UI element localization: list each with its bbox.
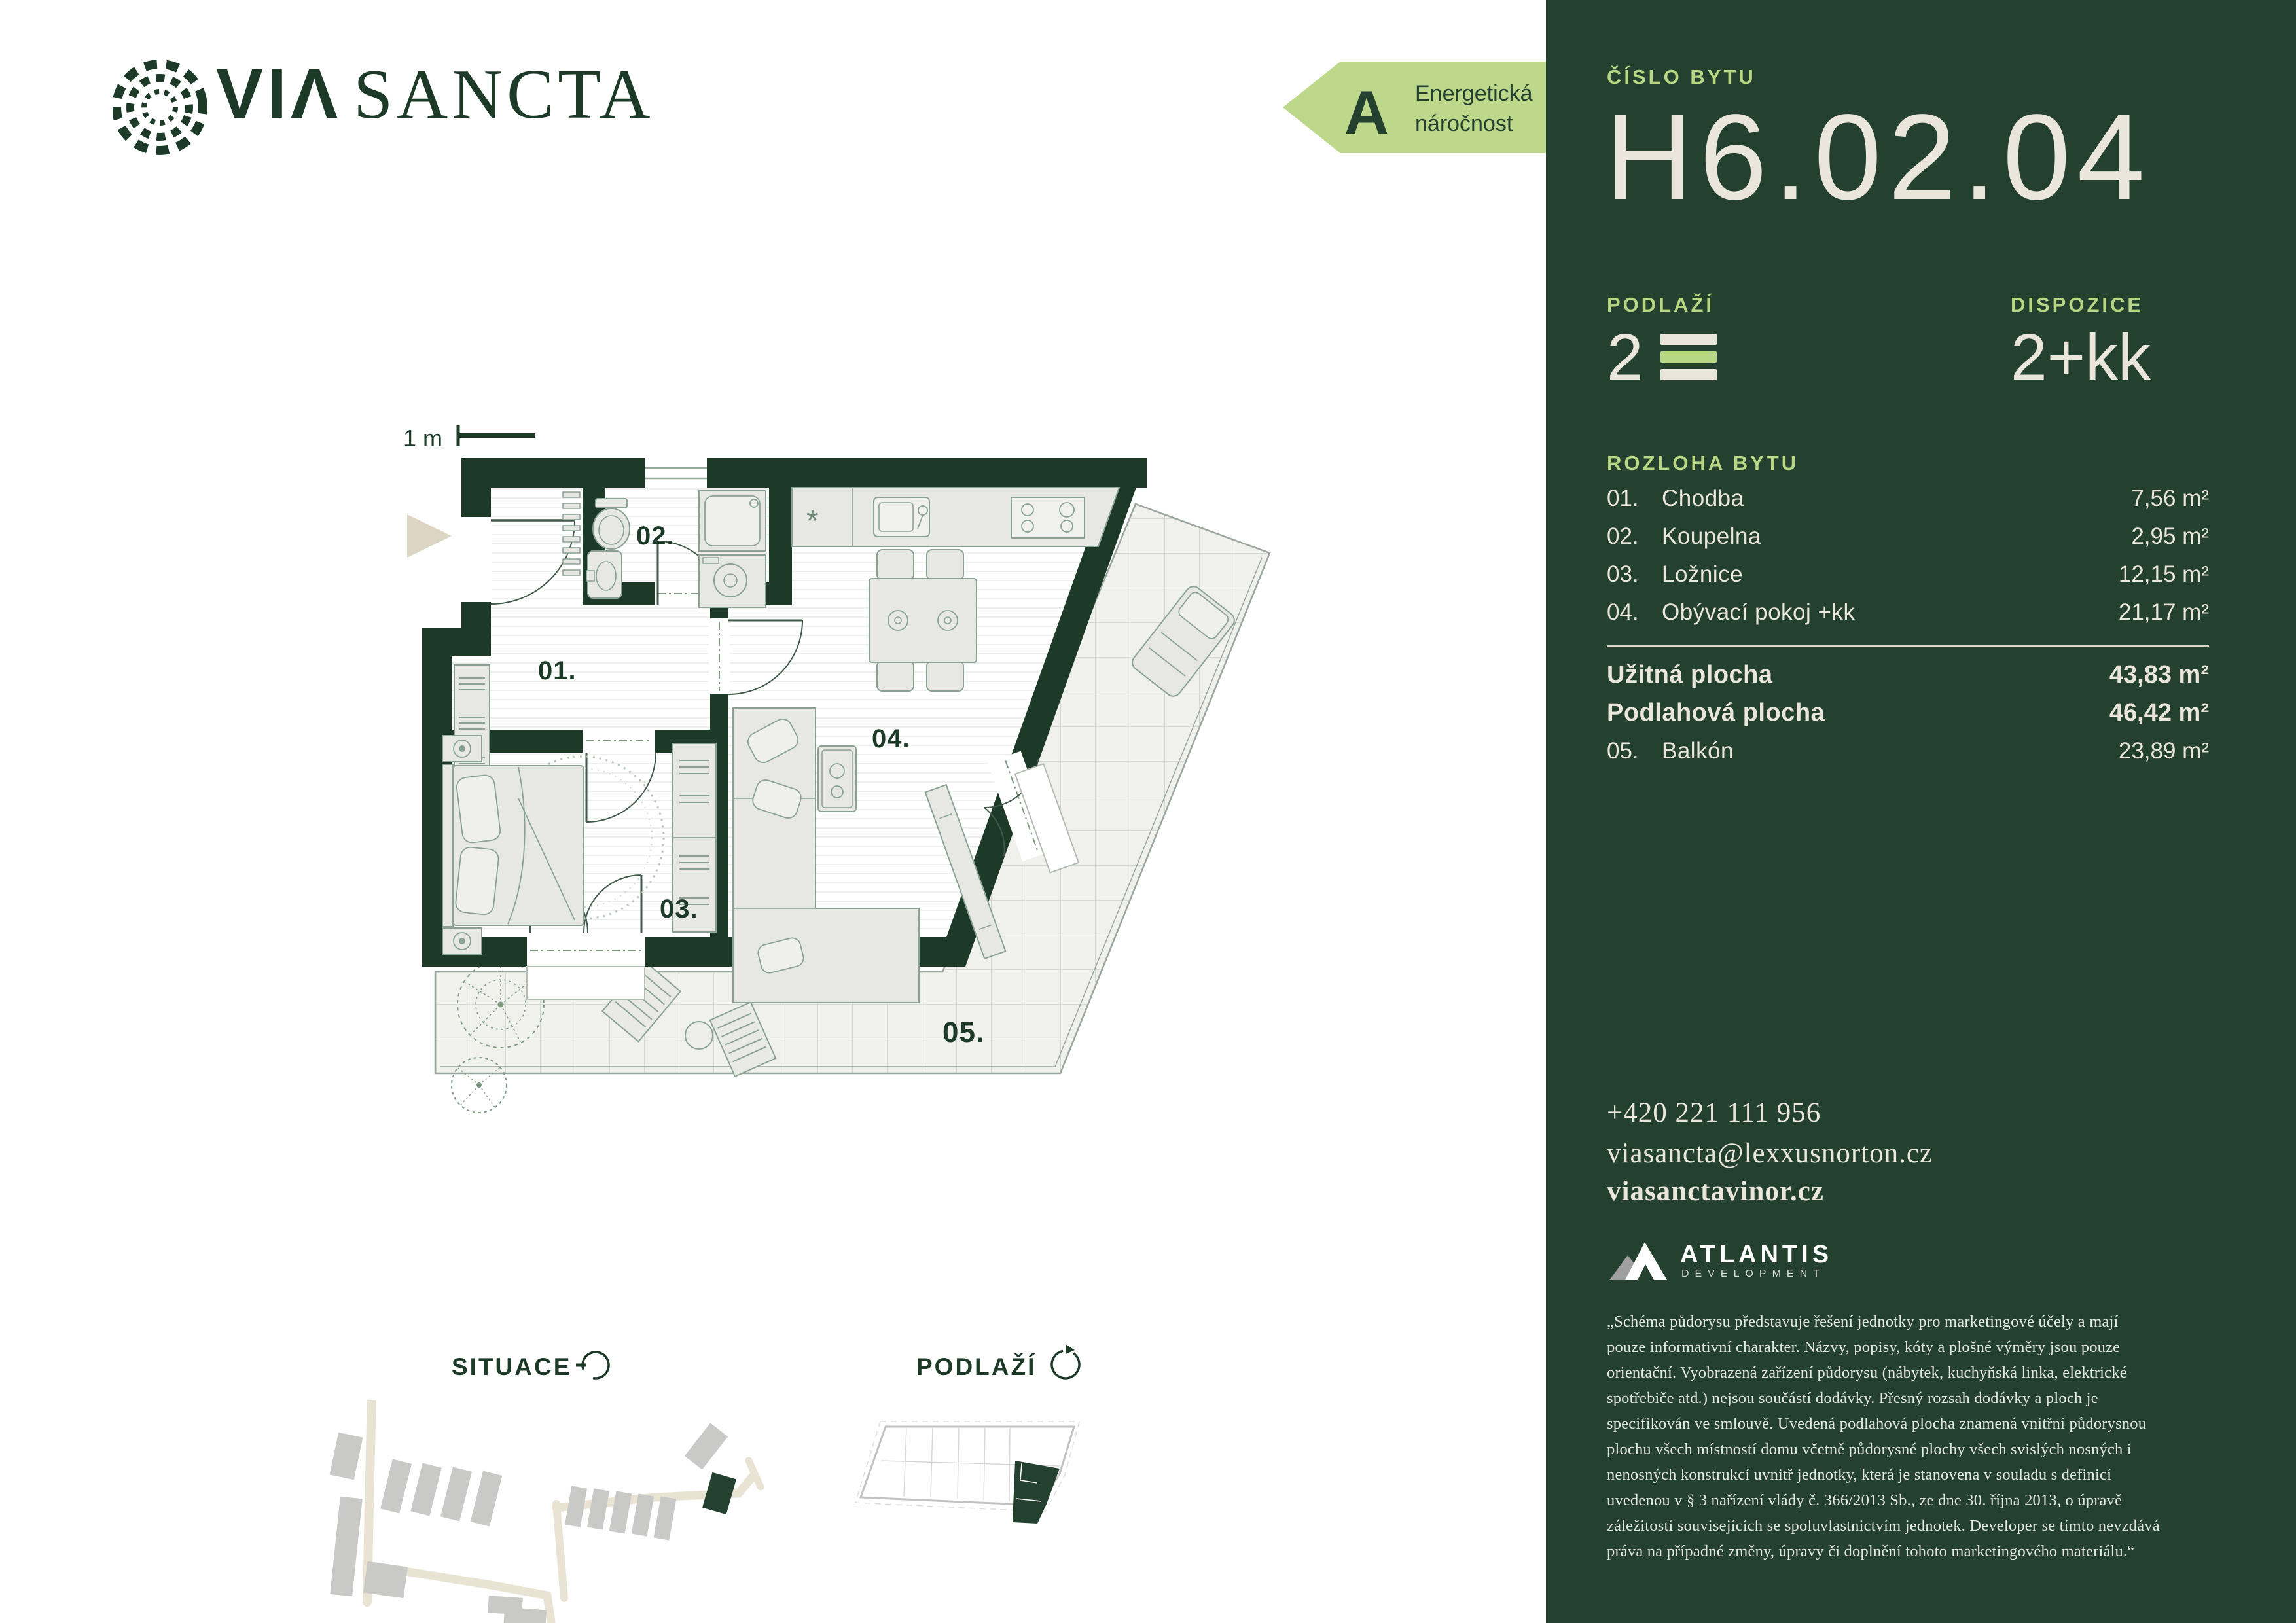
balcony-area: 23,89 m² bbox=[2119, 738, 2209, 764]
disposition-value: 2+kk bbox=[2011, 325, 2151, 390]
legal-disclaimer: „Schéma půdorysu představuje řešení jedn… bbox=[1607, 1309, 2161, 1564]
room-label-04: 04. bbox=[872, 724, 910, 753]
room-label-02: 02. bbox=[636, 522, 675, 550]
floor-area-value: 46,42 m² bbox=[2109, 699, 2209, 727]
highlighted-unit bbox=[1013, 1461, 1060, 1524]
disposition-label: DISPOZICE bbox=[2011, 293, 2144, 317]
bathroom-window bbox=[645, 458, 707, 488]
table-divider bbox=[1607, 645, 2209, 647]
room-area: 2,95 m² bbox=[2131, 524, 2209, 550]
floor-label: PODLAŽÍ bbox=[1607, 293, 1714, 317]
kitchen-sink bbox=[874, 497, 929, 537]
developer-subtitle: DEVELOPMENT bbox=[1681, 1268, 1825, 1280]
room-name: Obývací pokoj +kk bbox=[1662, 599, 2119, 626]
scale-label: 1 m bbox=[403, 425, 442, 452]
room-num: 01. bbox=[1607, 486, 1662, 512]
contact-phone: +420 221 111 956 bbox=[1607, 1097, 1821, 1129]
floor-area-label: Podlahová plocha bbox=[1607, 699, 2109, 727]
balcony-name: Balkón bbox=[1662, 738, 2119, 764]
room-area-row: 03. Ložnice 12,15 m² bbox=[1607, 562, 2209, 588]
fridge-icon: * bbox=[806, 504, 819, 539]
usable-area-row: Užitná plocha 43,83 m² bbox=[1607, 661, 2209, 689]
window-threshold bbox=[527, 967, 645, 999]
room-num: 04. bbox=[1607, 599, 1662, 626]
toilet bbox=[593, 499, 630, 549]
atlantis-logo-icon bbox=[1607, 1238, 1672, 1281]
energy-label-line1: Energetická bbox=[1415, 81, 1533, 106]
balcony-area-row: 05. Balkón 23,89 m² bbox=[1607, 738, 2209, 764]
scale-bar: 1 m bbox=[403, 425, 535, 452]
energy-grade: A bbox=[1344, 78, 1389, 147]
nightstand bbox=[442, 928, 482, 954]
room-area-row: 04. Obývací pokoj +kk 21,17 m² bbox=[1607, 599, 2209, 626]
room-area: 12,15 m² bbox=[2119, 562, 2209, 588]
bathroom-sink bbox=[586, 551, 622, 598]
highlighted-building bbox=[702, 1472, 736, 1514]
via-sancta-logo-icon bbox=[113, 56, 211, 160]
balcony-num: 05. bbox=[1607, 738, 1662, 764]
room-label-05: 05. bbox=[942, 1016, 984, 1048]
apartment-floorplan: * bbox=[367, 380, 1283, 1165]
room-name: Chodba bbox=[1662, 486, 2131, 512]
room-name: Koupelna bbox=[1662, 524, 2131, 550]
stove bbox=[1011, 497, 1085, 538]
situace-label: SITUACE bbox=[452, 1353, 571, 1381]
floor-area-row: Podlahová plocha 46,42 m² bbox=[1607, 699, 2209, 727]
rotation-compass-icon bbox=[1046, 1344, 1085, 1383]
usable-area-value: 43,83 m² bbox=[2109, 661, 2209, 689]
room-area: 7,56 m² bbox=[2131, 486, 2209, 512]
brand-logo: VIΛSANCTA bbox=[216, 51, 654, 137]
contact-website: viasanctavinor.cz bbox=[1607, 1175, 1824, 1207]
room-area: 21,17 m² bbox=[2119, 599, 2209, 626]
floor-value: 2 bbox=[1607, 325, 1643, 390]
room-name: Ložnice bbox=[1662, 562, 2119, 588]
floorplan-sheet: VIΛSANCTA A Energetická náročnost bbox=[0, 0, 2296, 1623]
brand-logo-sancta: SANCTA bbox=[353, 56, 654, 134]
unit-number-label: ČÍSLO BYTU bbox=[1607, 65, 1756, 89]
contact-email: viasancta@lexxusnorton.cz bbox=[1607, 1137, 1933, 1169]
room-area-row: 02. Koupelna 2,95 m² bbox=[1607, 524, 2209, 550]
room-label-03: 03. bbox=[660, 895, 698, 923]
energy-class-badge: A Energetická náročnost bbox=[1276, 58, 1550, 157]
room-area-row: 01. Chodba 7,56 m² bbox=[1607, 486, 2209, 512]
room-num: 03. bbox=[1607, 562, 1662, 588]
bed bbox=[442, 764, 584, 927]
nightstand bbox=[442, 736, 482, 762]
brand-logo-via: VIΛ bbox=[216, 54, 342, 133]
unit-number: H6.02.04 bbox=[1605, 97, 2151, 219]
energy-label-line2: náročnost bbox=[1415, 111, 1513, 136]
north-compass-icon bbox=[576, 1347, 613, 1383]
developer-name: ATLANTIS bbox=[1680, 1241, 1833, 1269]
situace-site-map bbox=[288, 1400, 818, 1623]
room-num: 02. bbox=[1607, 524, 1662, 550]
energy-arrow-shape bbox=[1283, 62, 1549, 153]
podlazi-map-label: PODLAŽÍ bbox=[916, 1353, 1036, 1381]
shower bbox=[699, 491, 766, 551]
floor-level-icon bbox=[1660, 334, 1717, 387]
usable-area-label: Užitná plocha bbox=[1607, 661, 2109, 689]
kitchen-counter: * bbox=[792, 488, 1119, 546]
tv-panel bbox=[818, 746, 856, 811]
area-section-label: ROZLOHA BYTU bbox=[1607, 452, 1799, 475]
room-label-01: 01. bbox=[538, 656, 577, 685]
info-panel: ČÍSLO BYTU H6.02.04 PODLAŽÍ 2 DISPOZICE … bbox=[1546, 0, 2296, 1623]
podlazi-floor-map bbox=[841, 1420, 1122, 1541]
terrace-side-table bbox=[685, 1022, 713, 1049]
washing-machine bbox=[699, 555, 766, 607]
entrance-arrow-icon bbox=[407, 514, 452, 558]
